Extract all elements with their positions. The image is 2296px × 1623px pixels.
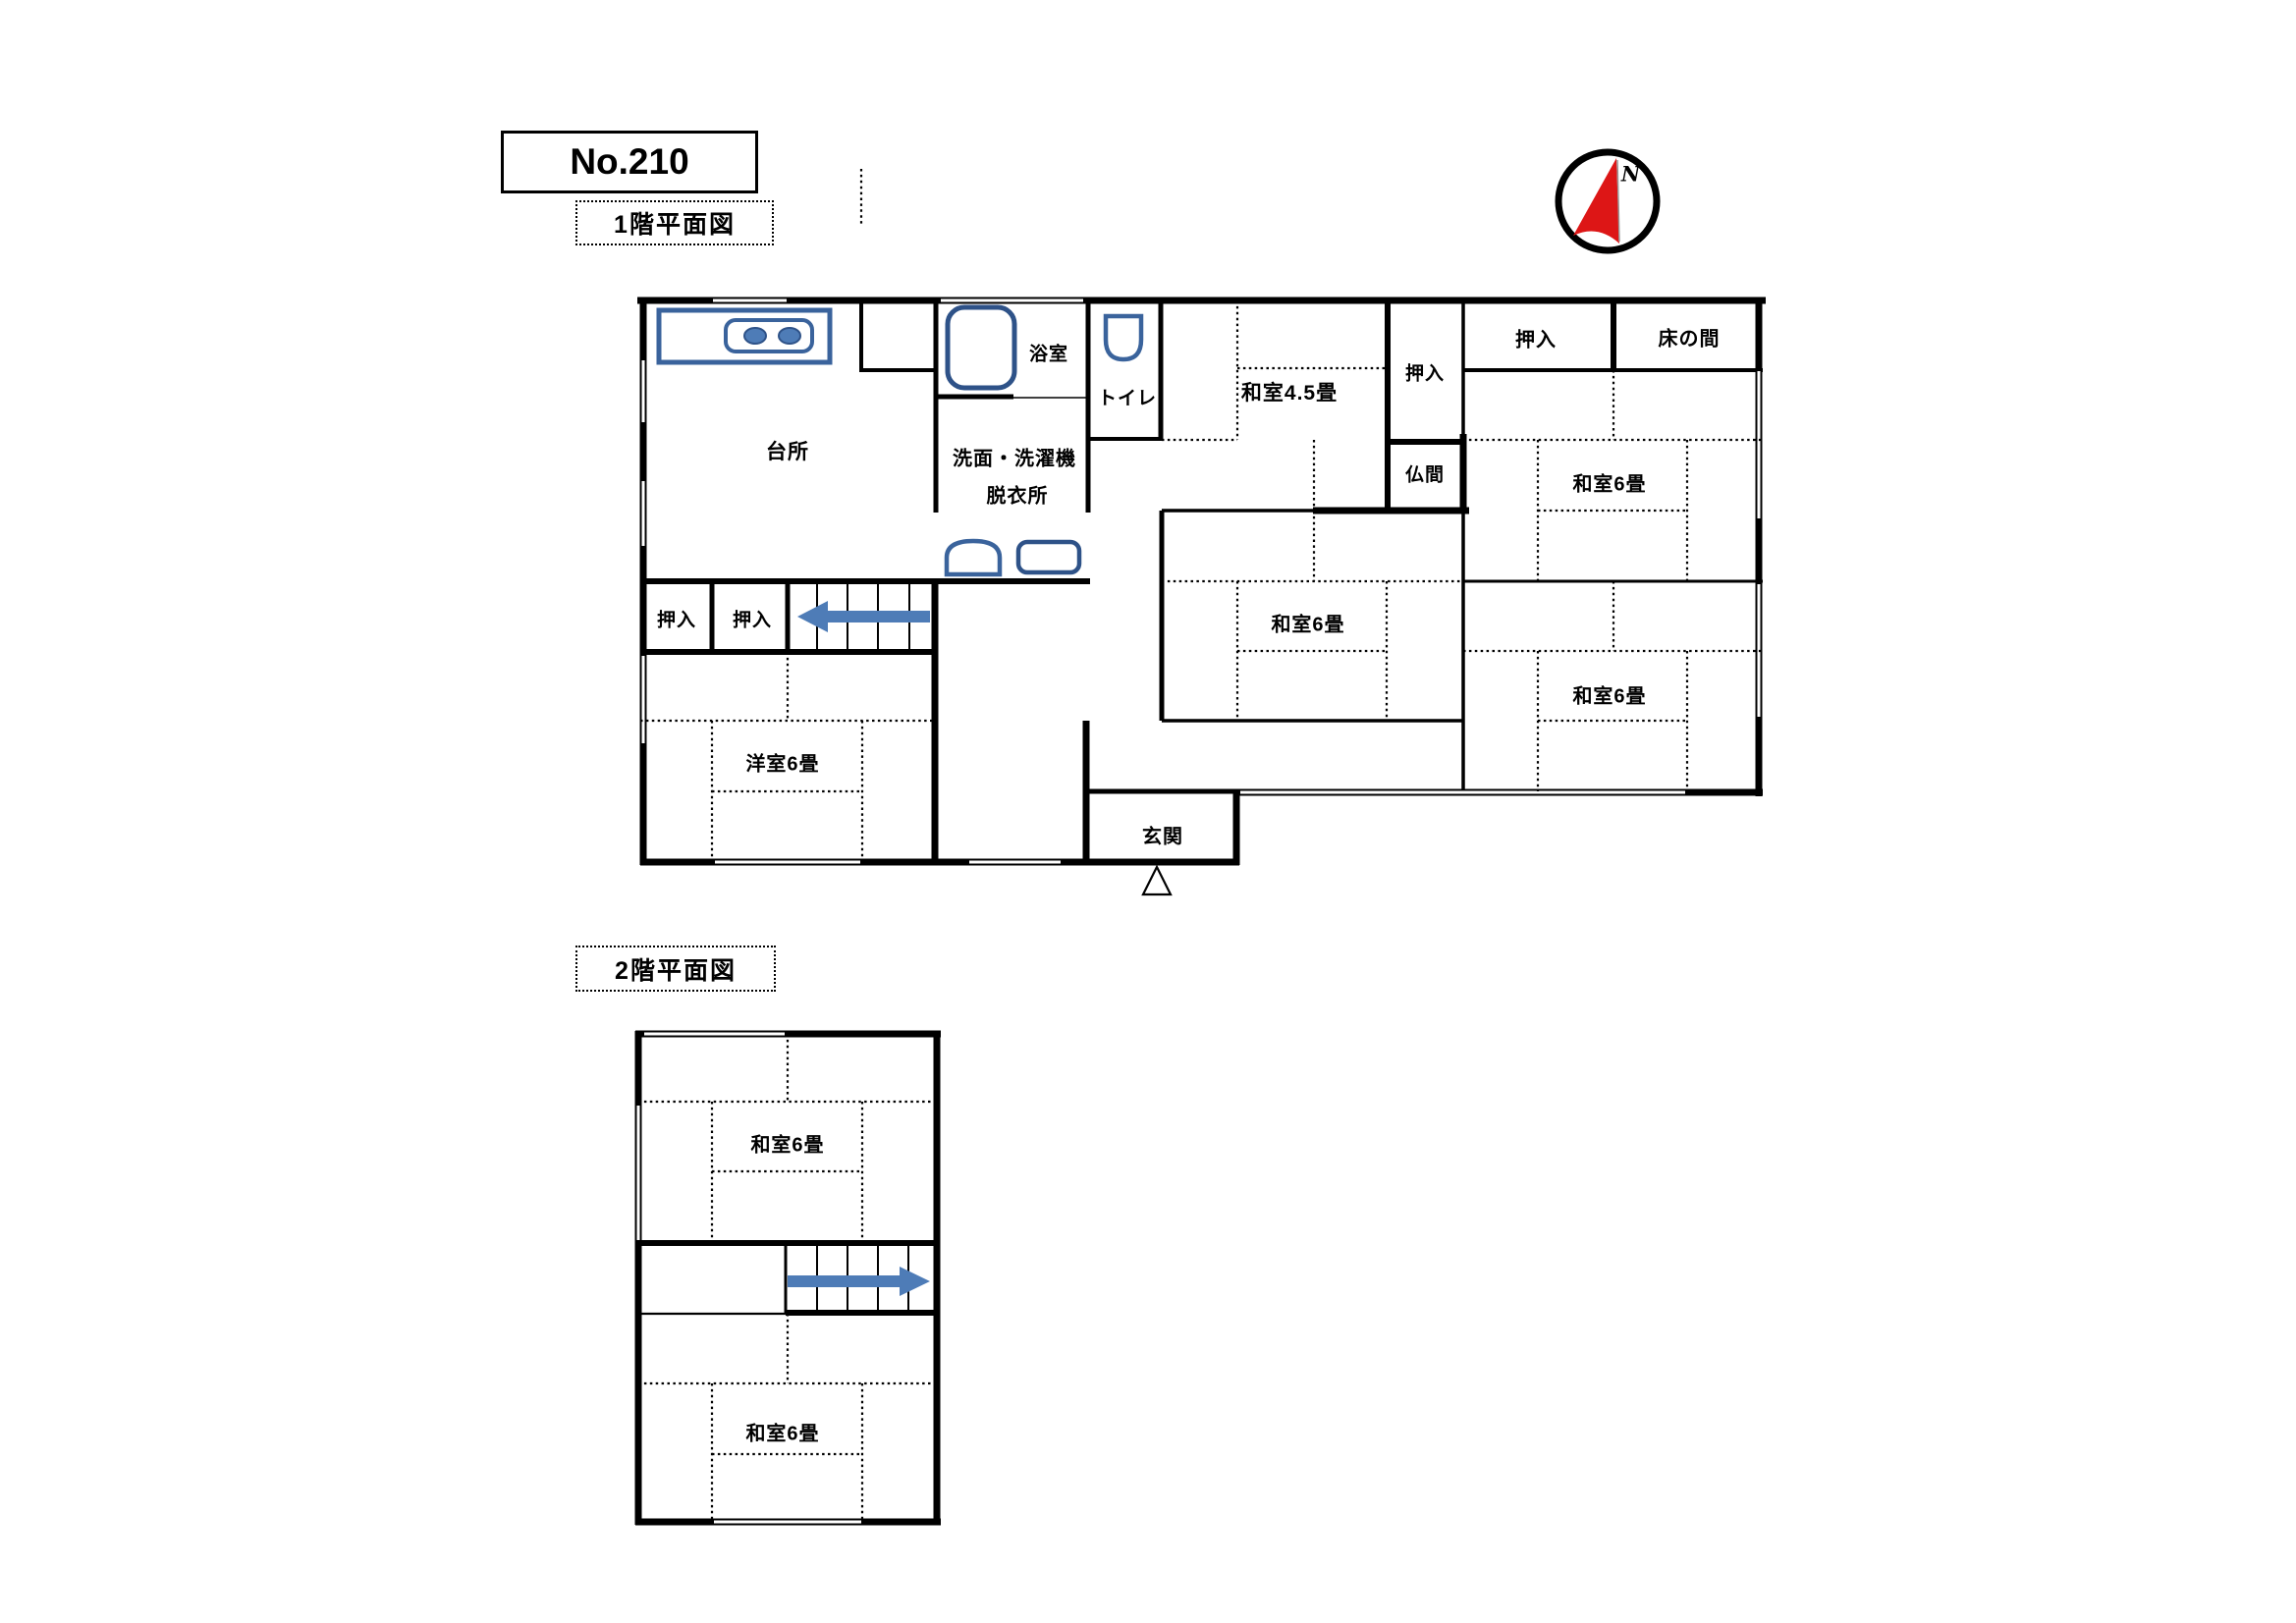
room-label-f2-washitsu6-south: 和室6畳 [745, 1418, 819, 1446]
room-label-washitsu-45: 和室4.5畳 [1241, 377, 1338, 406]
compass-icon [1558, 152, 1657, 250]
washbasin-icon [947, 541, 1000, 574]
toilet-icon [1106, 316, 1141, 359]
entrance-marker-icon [1143, 867, 1171, 894]
room-label-kitchen: 台所 [766, 436, 809, 465]
room-label-oshiire-ne: 押入 [1515, 324, 1557, 352]
room-label-yoshitsu6: 洋室6畳 [745, 748, 819, 777]
room-label-bathroom: 浴室 [1029, 340, 1068, 366]
room-label-oshiire-west2: 押入 [733, 606, 772, 632]
floor-plan-page: No.210 1階平面図 2階平面図 [0, 0, 2296, 1623]
kitchen-counter-icon [659, 310, 830, 362]
room-label-washroom-line1: 洗面・洗濯機 [953, 443, 1076, 471]
room-label-oshiire-center: 押入 [1405, 359, 1445, 386]
room-label-washitsu6-east-mid: 和室6畳 [1572, 468, 1646, 497]
room-label-butsuma: 仏間 [1405, 460, 1445, 487]
room-label-f2-washitsu6-north: 和室6畳 [750, 1129, 824, 1158]
room-label-washitsu6-east-south: 和室6畳 [1572, 680, 1646, 709]
room-label-oshiire-west1: 押入 [657, 606, 696, 632]
bathtub-icon [948, 307, 1014, 388]
room-label-genkan: 玄関 [1142, 821, 1183, 849]
room-label-washitsu6-center: 和室6畳 [1271, 609, 1344, 637]
washing-machine-icon [1018, 542, 1079, 572]
room-label-toilet: トイレ [1098, 384, 1157, 410]
plan-drawing [0, 0, 2296, 1623]
room-label-tokonoma: 床の間 [1659, 323, 1721, 352]
room-label-washroom-line2: 脱衣所 [987, 480, 1049, 509]
stairs-up-arrow-icon [788, 1267, 930, 1296]
floor1-walls [637, 298, 1766, 865]
compass-north-label: N [1621, 162, 1641, 187]
